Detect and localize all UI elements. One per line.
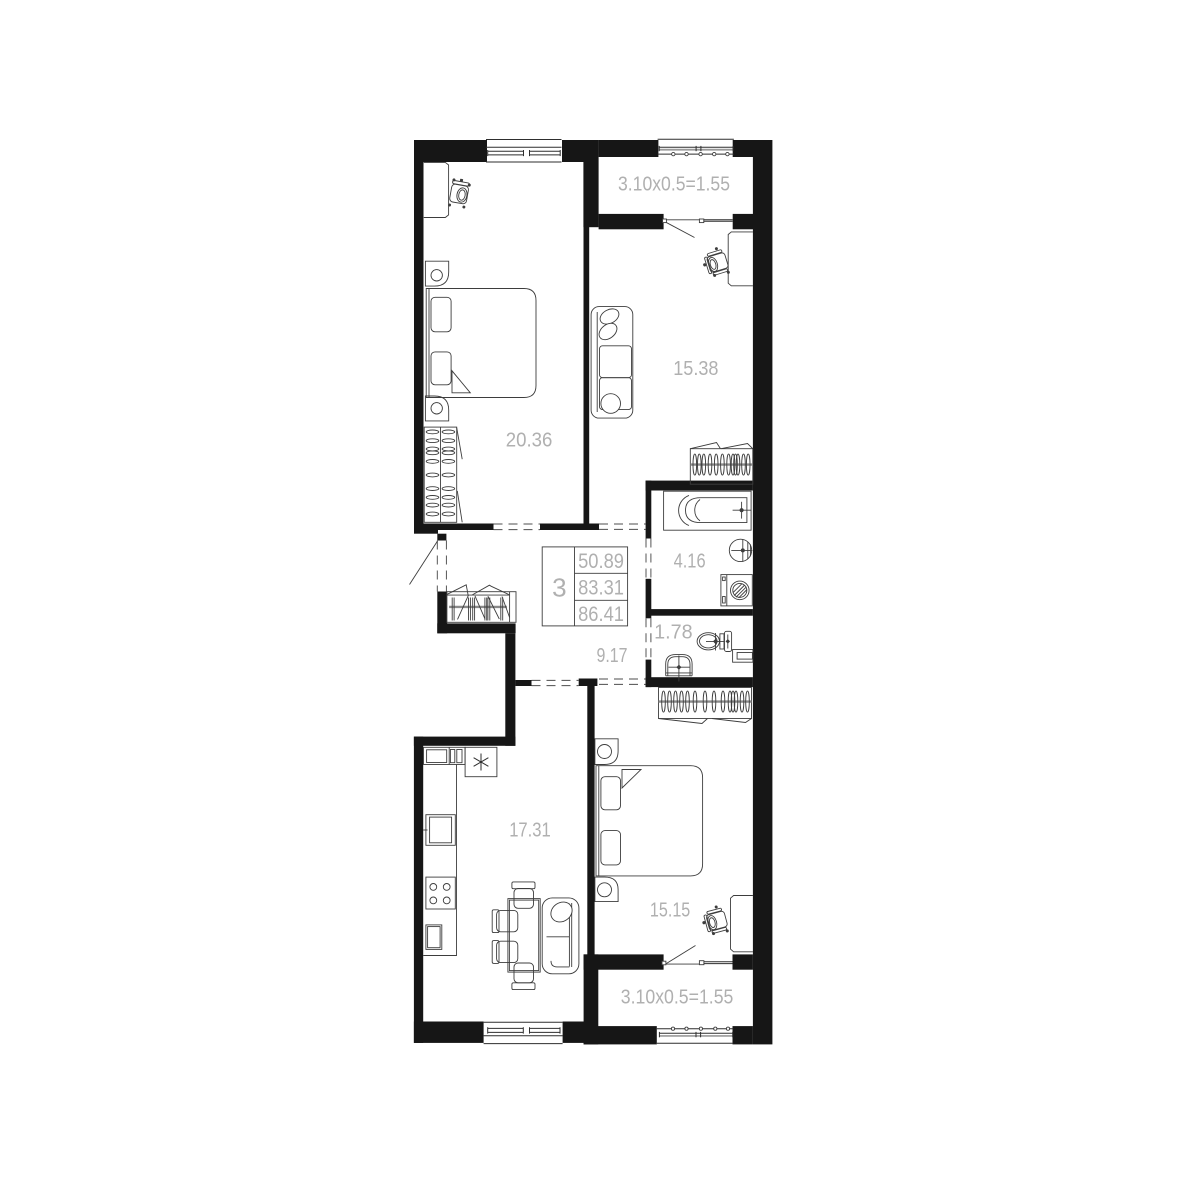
svg-text:3.10x0.5=1.55: 3.10x0.5=1.55 — [618, 174, 730, 196]
svg-text:15.15: 15.15 — [650, 899, 690, 921]
svg-text:3.10x0.5=1.55: 3.10x0.5=1.55 — [621, 987, 734, 1009]
svg-text:1.78: 1.78 — [654, 621, 693, 643]
svg-text:17.31: 17.31 — [509, 820, 551, 842]
svg-text:15.38: 15.38 — [673, 358, 718, 380]
svg-text:20.36: 20.36 — [506, 430, 553, 452]
svg-text:9.17: 9.17 — [597, 645, 628, 667]
svg-text:86.41: 86.41 — [578, 603, 624, 626]
svg-text:4.16: 4.16 — [674, 551, 706, 573]
svg-text:83.31: 83.31 — [578, 577, 624, 600]
svg-text:50.89: 50.89 — [578, 550, 624, 573]
svg-text:3: 3 — [552, 573, 566, 603]
